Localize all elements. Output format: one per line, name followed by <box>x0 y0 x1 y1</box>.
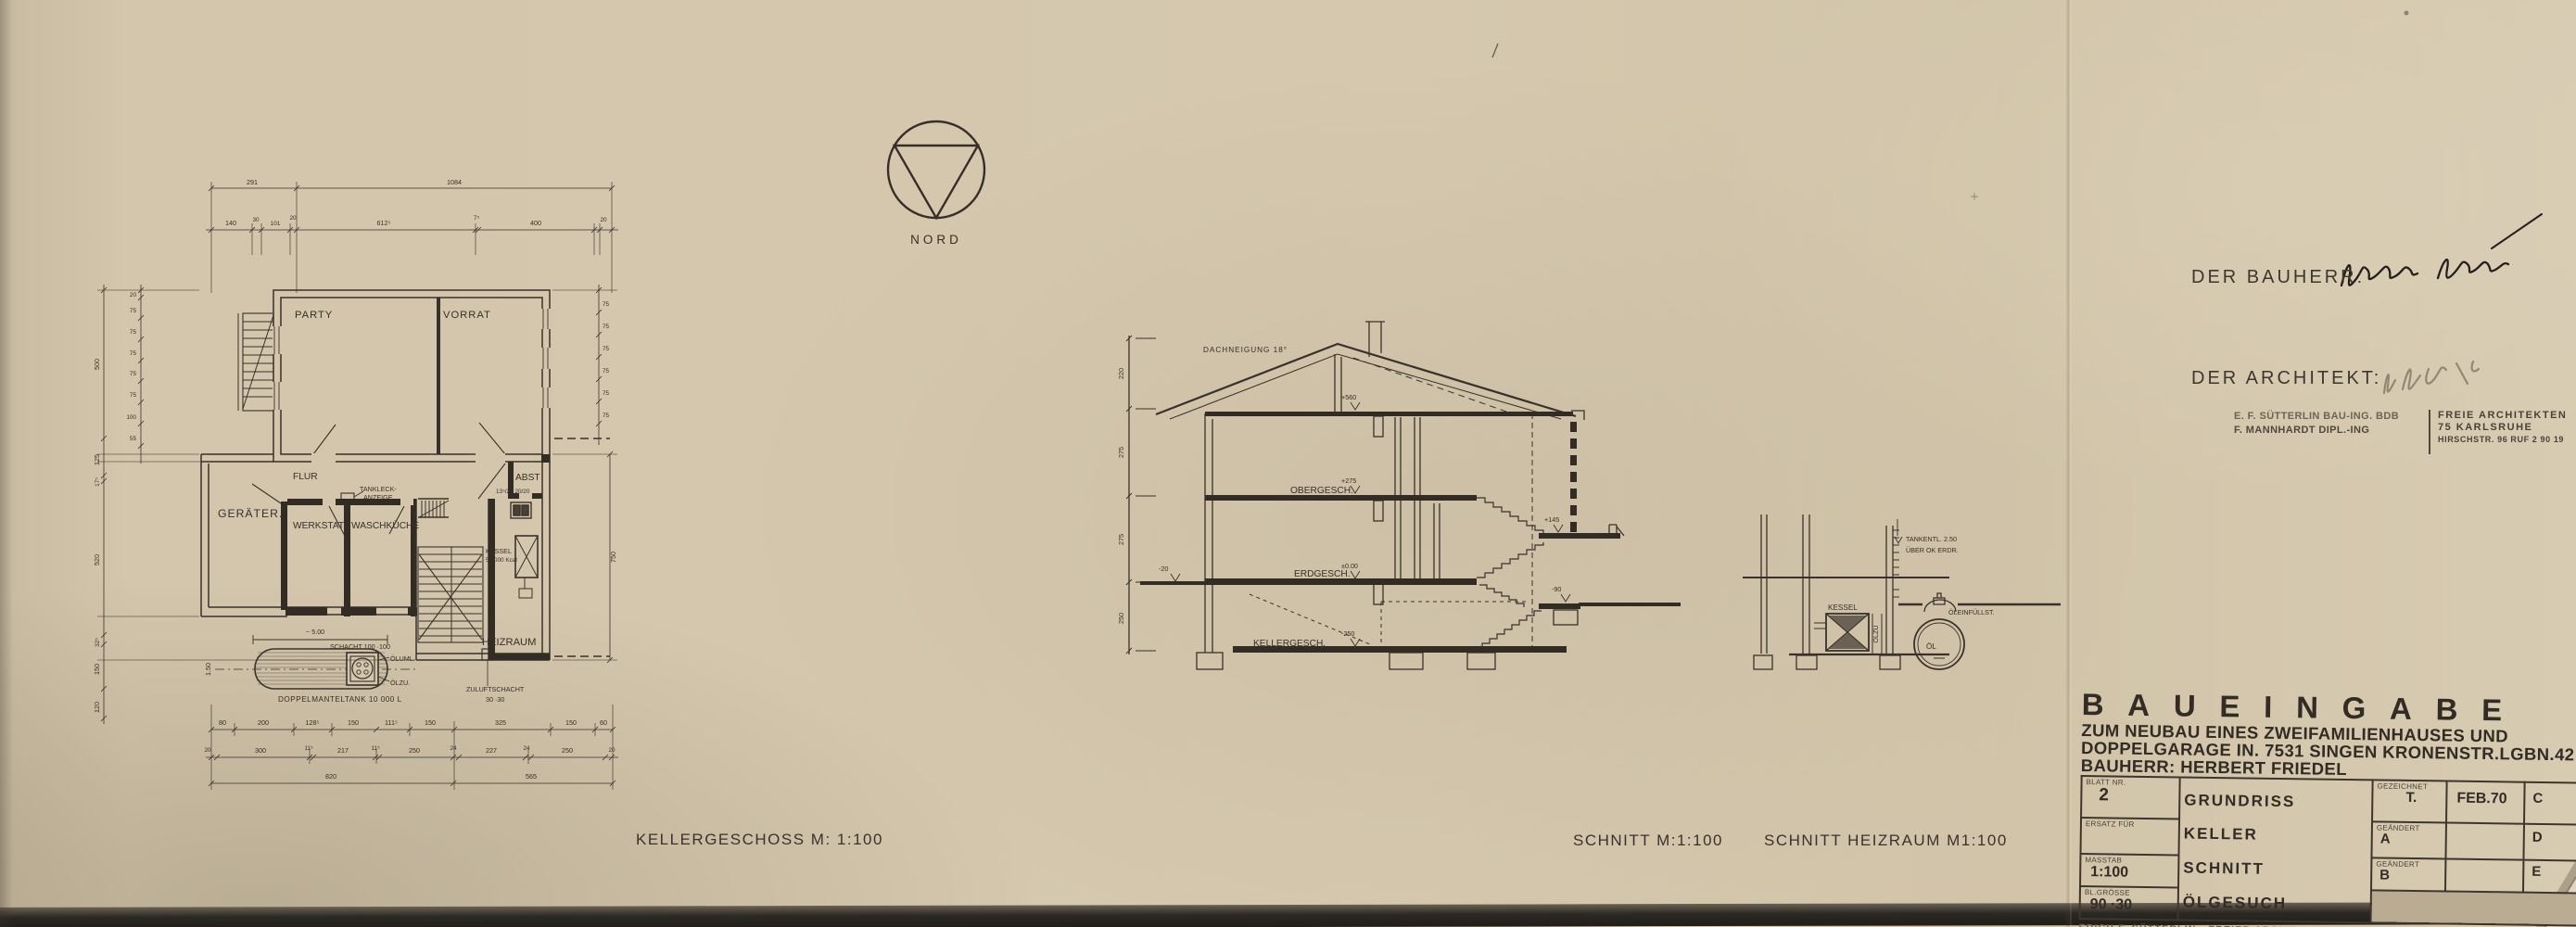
dim-label: 250 <box>1117 613 1125 624</box>
stamp-office: FREIE ARCHITEKTEN 75 KARLSRUHE HIRSCHSTR… <box>2438 410 2567 446</box>
dim-label: 75 <box>603 368 610 375</box>
dim-label: 75 <box>130 392 137 399</box>
room-label-geraete: GERÄTER. <box>218 507 283 520</box>
stamp-office-3: HIRSCHSTR. 96 RUF 2 90 19 <box>2438 434 2567 446</box>
drawing-title-2: SCHNITT <box>2183 851 2367 889</box>
rev-b: B <box>2376 868 2441 883</box>
label-approx: ~ 5.00 <box>306 628 324 636</box>
label-oeleinfuellst: ÖLEINFÜLLST. <box>1948 608 1995 616</box>
stamp-office-2: 75 KARLSRUHE <box>2438 422 2567 434</box>
heizraum-labels: TANKENTL. 2.50 ÜBER OK ERDR. KESSEL ÖLZU… <box>1828 535 1995 651</box>
dim-label: 75 <box>130 329 137 336</box>
bauherr-signature <box>2341 214 2542 286</box>
dim-label: 325 <box>495 718 506 727</box>
level-eg: ±0.00 <box>1341 562 1358 570</box>
label-abst-dims: 13⁵/20 20/20 <box>496 489 530 495</box>
dim-label: 75 <box>603 324 610 330</box>
drawing-title-1: GRUNDRISS KELLER <box>2184 784 2368 854</box>
dim-label: 75 <box>603 390 610 397</box>
dim-label: 612⁵ <box>377 219 391 227</box>
dim-label: 101 <box>271 221 281 227</box>
room-label-heizraum: HEIZRAUM <box>482 637 536 648</box>
caption-schnitt-heizraum: SCHNITT HEIZRAUM M1:100 <box>1764 832 2008 850</box>
rev-d: D <box>2529 825 2576 846</box>
dim-label: 60 <box>600 718 607 727</box>
stamp-name-2: F. MANNHARDT DIPL.-ING <box>2234 424 2425 438</box>
dim-label: 20 <box>289 215 297 222</box>
label-kessel-plan: KESSEL <box>486 547 512 555</box>
dim-label: 24 <box>450 745 457 752</box>
dim-label: 30 <box>252 217 260 223</box>
label-dachneigung: DACHNEIGUNG 18° <box>1203 346 1288 354</box>
dim-label: 20 <box>600 217 607 223</box>
plan-window-lines <box>274 309 548 410</box>
dim-label: 20 <box>608 747 615 754</box>
dim-label: 275 <box>1117 447 1125 458</box>
label-oeluml: ÖLUML. <box>390 654 415 663</box>
dim-label: 32⁵ <box>95 638 101 647</box>
dim-label: 150 <box>93 664 101 675</box>
room-label-waschkueche: WASCHKÜCHE <box>351 520 419 531</box>
dim-label: 220 <box>1117 368 1125 379</box>
dim-label: 1.50 <box>204 663 212 676</box>
dim-label: 150 <box>565 718 577 727</box>
cell-shaded <box>2370 890 2576 926</box>
dim-label: 500 <box>93 359 101 370</box>
label-kessel-kcal: 50 000 Kcal <box>486 557 517 564</box>
label-oel: ÖL <box>1926 641 1936 651</box>
dim-label: 17⁵ <box>95 477 101 487</box>
dim-label: 11⁵ <box>371 745 380 752</box>
label-zuluft2: 30 ·30 <box>486 695 504 704</box>
groesse-value: 90 ·30 <box>2085 896 2174 913</box>
dim-label: 80 <box>219 718 226 727</box>
cell-gezeichnet: GEZEICHNET T. <box>2372 780 2447 822</box>
label-tankleck2: ANZEIGE <box>363 493 393 502</box>
label-kellergeschoss: KELLERGESCH. <box>1253 639 1326 649</box>
dim-label: 125 <box>93 454 101 465</box>
stamp-divider <box>2429 410 2430 454</box>
drawing-title-3: ÖLGESUCH <box>2183 886 2367 922</box>
level-landing-up: +145 <box>1544 515 1559 524</box>
dim-label: 11⁵ <box>304 745 313 752</box>
label-tank: DOPPELMANTELTANK 10 000 L <box>278 695 402 704</box>
cell-blatt: BLATT NR. 2 <box>2081 776 2180 819</box>
dim-label: 820 <box>325 772 336 781</box>
north-label: NORD <box>910 233 962 247</box>
dim-label: 75 <box>130 350 137 357</box>
cell-rev-e: E <box>2523 859 2576 893</box>
level-og: +275 <box>1341 476 1356 485</box>
room-label-vorrat: VORRAT <box>443 310 491 321</box>
dim-label: 7⁵ <box>474 215 480 222</box>
dust-specks <box>1492 11 2408 200</box>
stamp-name-1: E. F. SÜTTERLIN BAU-ING. BDB <box>2234 410 2425 424</box>
dim-label: 300 <box>255 746 266 755</box>
label-oelzu-schnitt: ÖLZU <box>1872 625 1880 642</box>
dim-label: 20 <box>130 292 137 298</box>
label-kessel-schnitt: KESSEL <box>1828 603 1858 612</box>
dim-label: 150 <box>348 718 359 727</box>
dim-label: 75 <box>603 413 610 419</box>
room-label-abst: ABST <box>515 473 540 483</box>
label-erdgeschoss: ERDGESCH. <box>1294 569 1351 579</box>
title-table: BLATT NR. 2 GRUNDRISS KELLER SCHNITT ÖLG… <box>2079 775 2576 927</box>
level-kg: -250 <box>1341 629 1354 638</box>
room-label-werkstatt: WERKSTATT <box>293 521 349 531</box>
dim-label: 150 <box>425 718 436 727</box>
label-tankleck: TANKLECK- <box>360 485 397 493</box>
dim-label: 520 <box>93 554 101 565</box>
caption-kellergeschoss: KELLERGESCHOSS M: 1:100 <box>636 831 883 849</box>
blueprint-sheet: NORD <box>0 0 2576 927</box>
label-tankentl2: ÜBER OK ERDR. <box>1906 546 1959 554</box>
dim-label: 250 <box>409 746 420 755</box>
room-label-party: PARTY <box>295 310 333 321</box>
cell-masstab: MASSTAB 1:100 <box>2080 854 2178 888</box>
stamp-office-1: FREIE ARCHITEKTEN <box>2438 410 2567 422</box>
cell-drawings: GRUNDRISS KELLER SCHNITT ÖLGESUCH <box>2178 777 2373 922</box>
dim-label: 1084 <box>447 178 462 186</box>
label-obergeschoss: OBERGESCH. <box>1290 486 1353 496</box>
dim-label: 200 <box>258 718 269 727</box>
dim-label: 565 <box>526 772 537 781</box>
dim-label: 24 <box>523 745 530 752</box>
dim-label: 275 <box>1117 534 1125 545</box>
title-block: BAUEINGABE ZUM NEUBAU EINES ZWEIFAMILIEN… <box>2078 688 2576 927</box>
dim-label: 111⁵ <box>385 718 398 727</box>
cell-empty-2 <box>2445 858 2523 892</box>
dim-label: 100 <box>126 414 136 421</box>
masstab-value: 1:100 <box>2085 864 2174 881</box>
room-label-flur: FLUR <box>293 472 318 482</box>
cell-date: FEB.70 <box>2446 781 2525 824</box>
label-oelzu: ÖLZU. <box>390 679 410 687</box>
architect-stamp: E. F. SÜTTERLIN BAU-ING. BDB F. MANNHARD… <box>2234 410 2576 454</box>
dim-label: 75 <box>603 301 610 308</box>
level-ridge: +560 <box>1341 393 1356 401</box>
bauherr-label: DER BAUHERR: <box>2191 267 2365 288</box>
rev-c: C <box>2529 783 2576 807</box>
architekt-signature <box>2384 362 2479 393</box>
dim-label: 217 <box>337 746 349 755</box>
dim-label: 128⁵ <box>306 718 320 727</box>
cell-rev-c: C <box>2524 782 2576 825</box>
dim-label: 75 <box>130 308 137 314</box>
dim-label: 291 <box>247 178 258 186</box>
cell-groesse: BL.GRÖSSE 90 ·30 <box>2080 886 2178 921</box>
architekt-label: DER ARCHITEKT: <box>2191 368 2381 389</box>
dim-label: 400 <box>530 219 541 227</box>
heizraum-linework <box>1743 514 2061 669</box>
dim-label: 250 <box>562 746 573 755</box>
dim-label: 227 <box>486 746 497 755</box>
dim-label: 140 <box>225 219 236 227</box>
cell-rev-d: D <box>2523 824 2576 861</box>
caption-schnitt: SCHNITT M:1:100 <box>1573 832 1723 850</box>
rev-a: A <box>2377 832 2442 847</box>
blatt-value: 2 <box>2086 786 2175 806</box>
rev-e: E <box>2528 860 2576 880</box>
label-zuluft: ZULUFTSCHACHT <box>466 685 525 693</box>
label-schacht: SCHACHT 100 ·100 <box>330 642 390 651</box>
north-arrow-icon <box>888 121 984 218</box>
section-slabs <box>1140 412 1681 653</box>
cell-geaendert-a: GEÄNDERT A <box>2371 821 2446 858</box>
gezeichnet-value: T. <box>2377 790 2442 806</box>
level-landing-low: -90 <box>1552 585 1561 593</box>
cell-ersatz: ERSATZ FÜR <box>2081 818 2180 855</box>
level-terrain: -20 <box>1159 565 1168 573</box>
ersatz-label: ERSATZ FÜR <box>2086 819 2175 829</box>
dim-label: 55 <box>130 436 137 442</box>
dim-label: 120 <box>93 702 101 713</box>
date-value: FEB.70 <box>2451 782 2519 807</box>
dim-label: 20 <box>204 747 211 754</box>
label-tankentl: TANKENTL. 2.50 <box>1906 535 1957 543</box>
stamp-names: E. F. SÜTTERLIN BAU-ING. BDB F. MANNHARD… <box>2234 410 2425 438</box>
dim-label: 75 <box>130 371 137 377</box>
cell-geaendert-b: GEÄNDERT B <box>2371 857 2445 891</box>
cell-empty-1 <box>2445 822 2524 859</box>
dim-label: 75 <box>603 346 610 352</box>
dim-label: 750 <box>609 552 617 563</box>
